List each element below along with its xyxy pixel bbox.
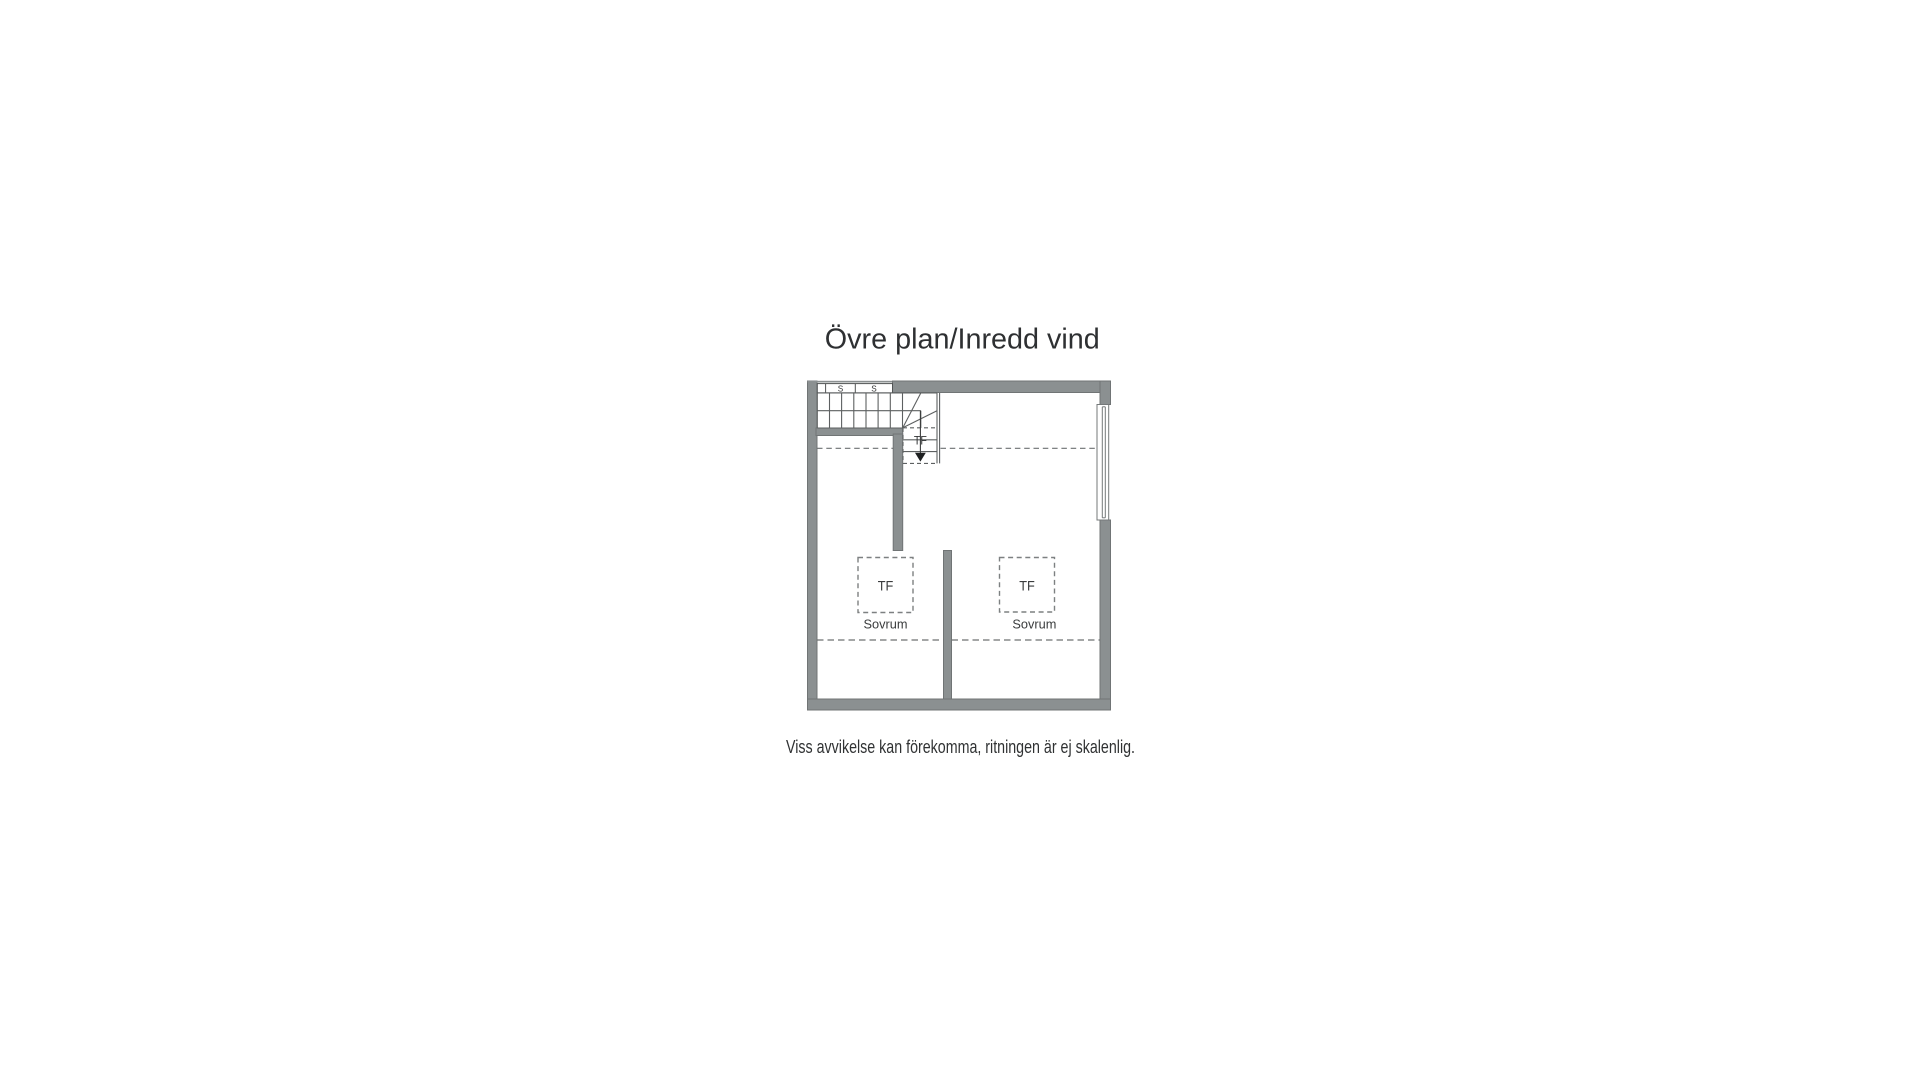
svg-text:Sovrum: Sovrum: [864, 617, 908, 632]
svg-text:TF: TF: [1019, 579, 1035, 594]
svg-text:Sovrum: Sovrum: [1012, 617, 1056, 632]
svg-text:S: S: [871, 384, 877, 393]
svg-text:S: S: [838, 384, 844, 393]
svg-text:TF: TF: [914, 434, 927, 448]
svg-text:TF: TF: [878, 579, 894, 594]
svg-text:Viss avvikelse kan förekomma,: Viss avvikelse kan förekomma, ritningen …: [786, 736, 1135, 757]
svg-text:Övre plan/Inredd vind: Övre plan/Inredd vind: [825, 324, 1100, 356]
